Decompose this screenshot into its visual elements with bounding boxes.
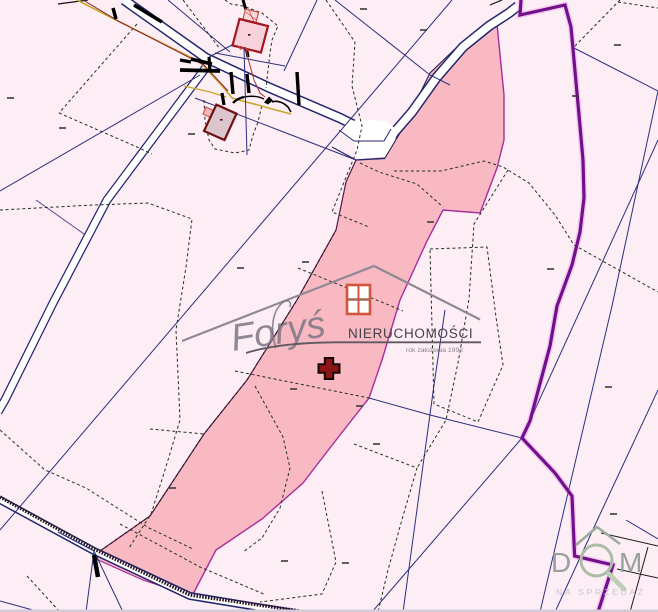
svg-text:NIERUCHOMOŚCI: NIERUCHOMOŚCI (348, 326, 473, 341)
svg-text:NA SPRZEDAŻ: NA SPRZEDAŻ (556, 587, 646, 597)
svg-text:D: D (551, 547, 571, 578)
svg-text:rok założenia 1992: rok założenia 1992 (406, 347, 463, 354)
svg-text:M: M (619, 547, 642, 578)
